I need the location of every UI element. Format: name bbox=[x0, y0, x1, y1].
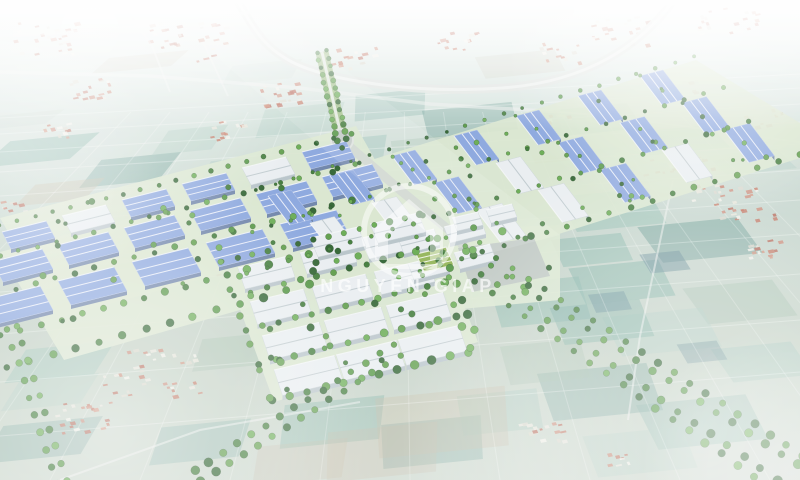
watermark-text: NGUYEN GIAP bbox=[320, 276, 496, 296]
logo-underline-bar bbox=[381, 264, 437, 269]
aerial-scene: NGUYEN GIAP bbox=[0, 0, 800, 480]
masterplan-render: NGUYEN GIAP bbox=[0, 0, 800, 480]
fog-haze-overlay bbox=[0, 0, 800, 480]
